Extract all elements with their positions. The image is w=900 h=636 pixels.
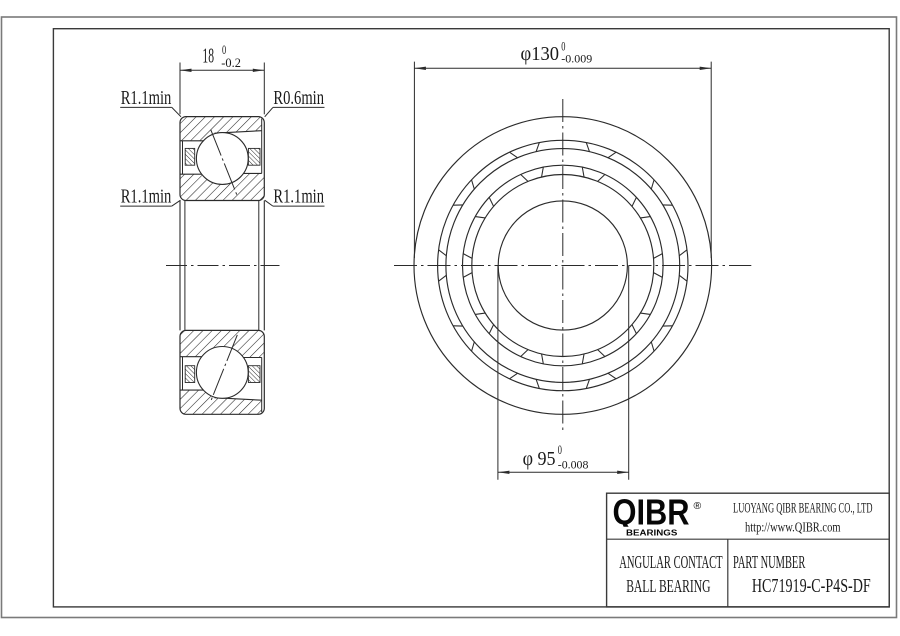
svg-text:BALL BEARING: BALL BEARING xyxy=(626,576,710,596)
svg-text:0: 0 xyxy=(558,443,562,457)
svg-text:-0.009: -0.009 xyxy=(561,52,592,66)
svg-text:φ130: φ130 xyxy=(521,44,560,65)
svg-text:LUOYANG QIBR BEARING CO., LTD: LUOYANG QIBR BEARING CO., LTD xyxy=(733,500,873,517)
svg-text:QIBR: QIBR xyxy=(613,492,690,533)
svg-text:HC71919-C-P4S-DF: HC71919-C-P4S-DF xyxy=(752,575,871,597)
svg-text:http://www.QIBR.com: http://www.QIBR.com xyxy=(745,520,841,535)
svg-text:®: ® xyxy=(694,500,702,512)
svg-text:PART NUMBER: PART NUMBER xyxy=(733,552,806,572)
svg-text:-0.2: -0.2 xyxy=(221,56,241,70)
svg-text:ANGULAR CONTACT: ANGULAR CONTACT xyxy=(619,552,722,572)
svg-text:R1.1min: R1.1min xyxy=(121,186,172,208)
svg-text:φ 95: φ 95 xyxy=(523,448,556,470)
svg-text:R1.1min: R1.1min xyxy=(121,87,172,109)
svg-text:18: 18 xyxy=(202,43,214,67)
svg-text:-0.008: -0.008 xyxy=(558,458,589,472)
svg-text:R1.1min: R1.1min xyxy=(273,186,324,208)
svg-text:R0.6min: R0.6min xyxy=(273,87,324,109)
svg-text:0: 0 xyxy=(222,42,226,57)
svg-text:BEARINGS: BEARINGS xyxy=(626,528,677,537)
